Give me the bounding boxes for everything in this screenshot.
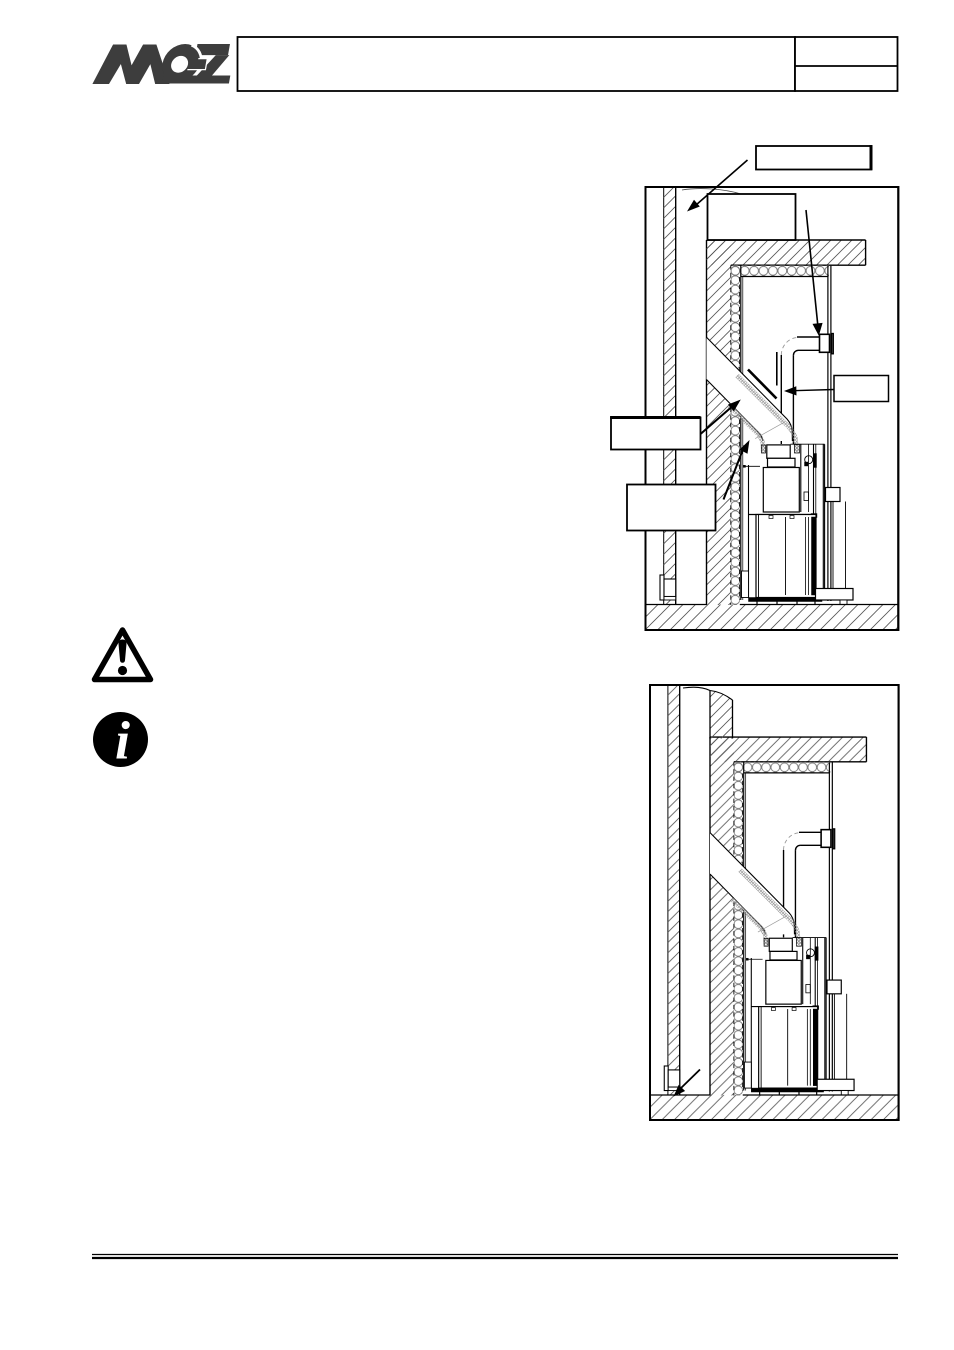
svg-text:i: i (115, 711, 130, 771)
